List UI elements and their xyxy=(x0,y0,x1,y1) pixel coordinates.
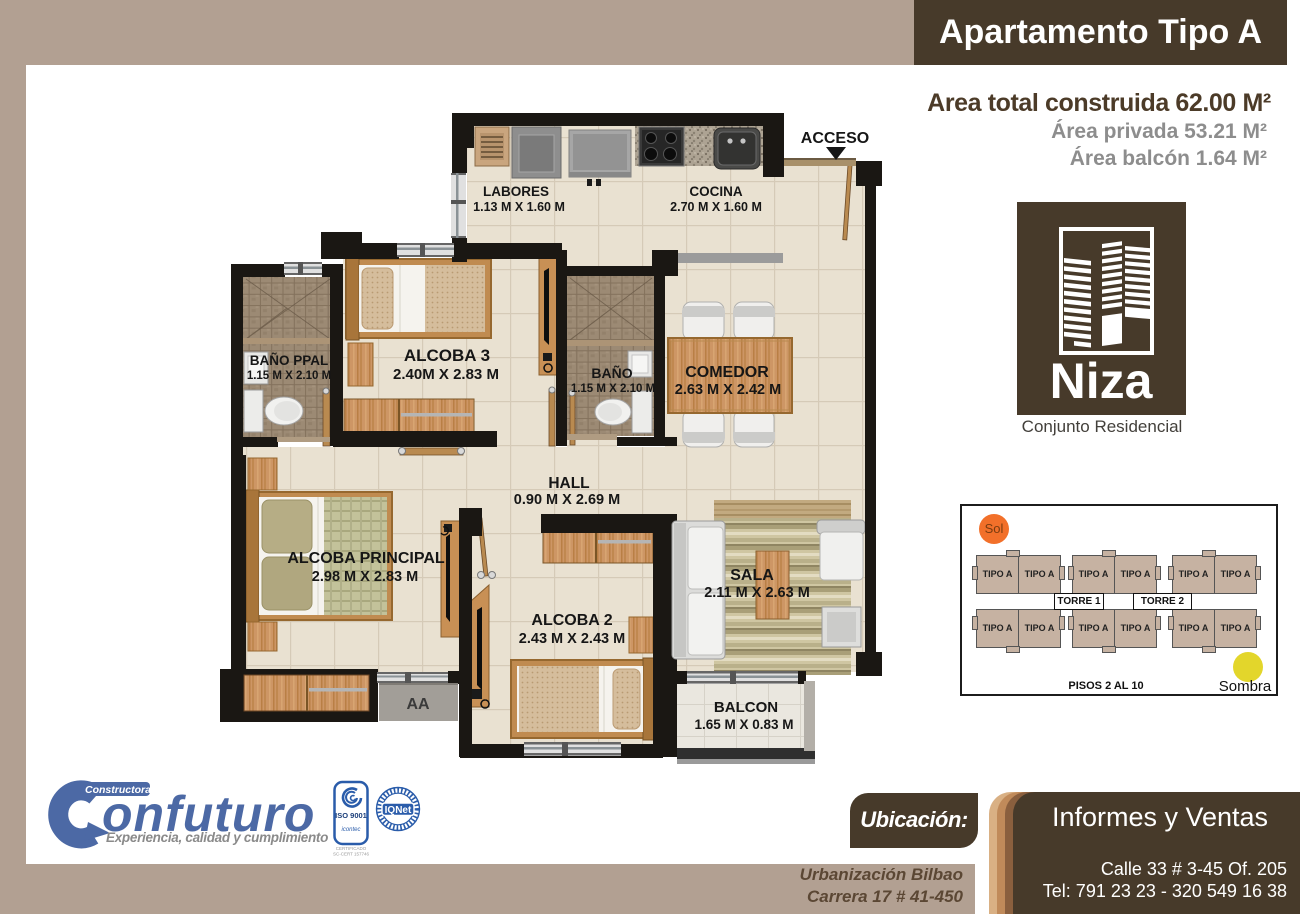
svg-text:ACCESO: ACCESO xyxy=(801,130,869,147)
svg-text:2.43 M X 2.43 M: 2.43 M X 2.43 M xyxy=(519,631,625,647)
svg-text:2.40M X 2.83 M: 2.40M X 2.83 M xyxy=(393,366,499,383)
svg-text:1.65 M X 0.83 M: 1.65 M X 0.83 M xyxy=(694,717,793,732)
svg-text:ALCOBA 3: ALCOBA 3 xyxy=(404,346,490,365)
svg-text:COMEDOR: COMEDOR xyxy=(685,364,769,381)
svg-text:LABORES: LABORES xyxy=(483,184,549,199)
svg-text:ALCOBA PRINCIPAL: ALCOBA PRINCIPAL xyxy=(287,550,445,567)
svg-text:2.63 M X 2.42 M: 2.63 M X 2.42 M xyxy=(675,382,781,398)
svg-text:2.70 M X 1.60 M: 2.70 M X 1.60 M xyxy=(670,200,762,214)
svg-text:2.98 M X 2.83 M: 2.98 M X 2.83 M xyxy=(312,569,418,585)
svg-text:BAÑO: BAÑO xyxy=(591,364,632,381)
svg-text:HALL: HALL xyxy=(548,475,589,492)
svg-text:AA: AA xyxy=(406,696,430,713)
svg-text:BAÑO PPAL: BAÑO PPAL xyxy=(250,353,329,368)
svg-text:SALA: SALA xyxy=(730,567,774,584)
svg-text:ALCOBA 2: ALCOBA 2 xyxy=(531,612,612,629)
svg-text:BALCON: BALCON xyxy=(714,699,778,716)
svg-text:COCINA: COCINA xyxy=(689,184,742,199)
svg-text:0.90 M X 2.69 M: 0.90 M X 2.69 M xyxy=(514,492,620,508)
svg-text:1.15 M X 2.10 M: 1.15 M X 2.10 M xyxy=(247,370,331,382)
svg-text:2.11 M X 2.63 M: 2.11 M X 2.63 M xyxy=(704,585,810,601)
svg-text:1.13 M X 1.60 M: 1.13 M X 1.60 M xyxy=(473,200,565,214)
svg-text:1.15 M X 2.10 M: 1.15 M X 2.10 M xyxy=(571,383,655,395)
